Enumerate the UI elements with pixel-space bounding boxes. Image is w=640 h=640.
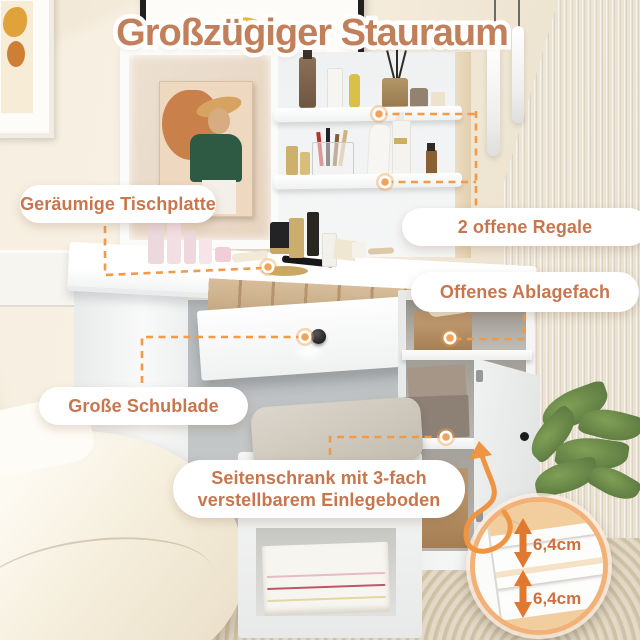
- callout-ablagefach: Offenes Ablagefach: [411, 272, 639, 312]
- acrylic-cup: [312, 142, 354, 178]
- gold-bottle: [286, 146, 298, 175]
- callout-label: Offenes Ablagefach: [440, 281, 610, 304]
- diffuser-bottle: [382, 78, 408, 108]
- callout-regale: 2 offene Regale: [402, 208, 640, 246]
- magnifier-inset: 6,4cm 6,4cm: [470, 497, 608, 635]
- dropper-cap: [427, 143, 435, 151]
- box-stripe: [268, 596, 386, 602]
- amber-bottle: [299, 57, 316, 108]
- callout-label-line1: Seitenschrank mit 3-fach: [211, 467, 426, 490]
- box-stripe: [267, 584, 385, 590]
- door-knob: [520, 432, 529, 441]
- kraft-box: [414, 312, 472, 352]
- gold-bottle: [300, 152, 310, 175]
- measure-upper: 6,4cm: [533, 535, 581, 554]
- callout-schublade: Große Schublade: [39, 387, 248, 425]
- open-shelf-1: [274, 106, 462, 123]
- spray-bottle: [327, 68, 343, 110]
- pink-bottle: [184, 230, 196, 264]
- cosmetic-tube: [367, 123, 392, 178]
- cabinet-shelf: [402, 350, 532, 360]
- measurement-arrows: 6,4cm 6,4cm: [475, 502, 603, 630]
- callout-label: Große Schublade: [68, 395, 219, 418]
- duvet-fold: [0, 525, 218, 640]
- open-shelf-2: [274, 173, 462, 190]
- page-title: Großzügiger Stauraum Großzügiger Staurau…: [32, 12, 592, 55]
- callout-label: 2 offene Regale: [458, 216, 593, 239]
- knob-highlight: [296, 344, 322, 358]
- callout-seitenschrank: Seitenschrank mit 3-fach verstellbarem E…: [173, 460, 465, 518]
- callout-label-line2: verstellbarem Einlegeboden: [198, 489, 441, 512]
- product-annotation-image: Geräumige Tischplatte 2 offene Regale Of…: [0, 0, 640, 640]
- pink-bottle: [167, 222, 181, 264]
- pump-bottle: [392, 120, 411, 178]
- double-arrow-icon: [514, 518, 532, 618]
- drawer-knob: [311, 329, 326, 344]
- pink-bottle: [199, 238, 212, 264]
- door-hinge: [476, 370, 483, 382]
- callout-label: Geräumige Tischplatte: [20, 193, 216, 216]
- poster-face: [208, 108, 230, 134]
- gold-perfume: [289, 218, 304, 258]
- gold-tray: [262, 266, 308, 276]
- stacked-boxes: [262, 542, 390, 616]
- title-text: Großzügiger Stauraum: [116, 12, 508, 54]
- callout-tischplatte: Geräumige Tischplatte: [20, 185, 216, 223]
- dropper-bottle: [307, 212, 319, 256]
- poster-blouse: [190, 134, 242, 182]
- pink-jar: [215, 247, 231, 262]
- gold-band: [394, 138, 407, 144]
- pendant-light: [487, 44, 500, 156]
- box-stripe: [267, 572, 385, 578]
- frame-art-shape: [7, 41, 25, 67]
- white-jar: [352, 242, 366, 258]
- oil-bottle: [349, 74, 360, 108]
- measure-lower: 6,4cm: [533, 589, 581, 608]
- mug: [410, 88, 428, 108]
